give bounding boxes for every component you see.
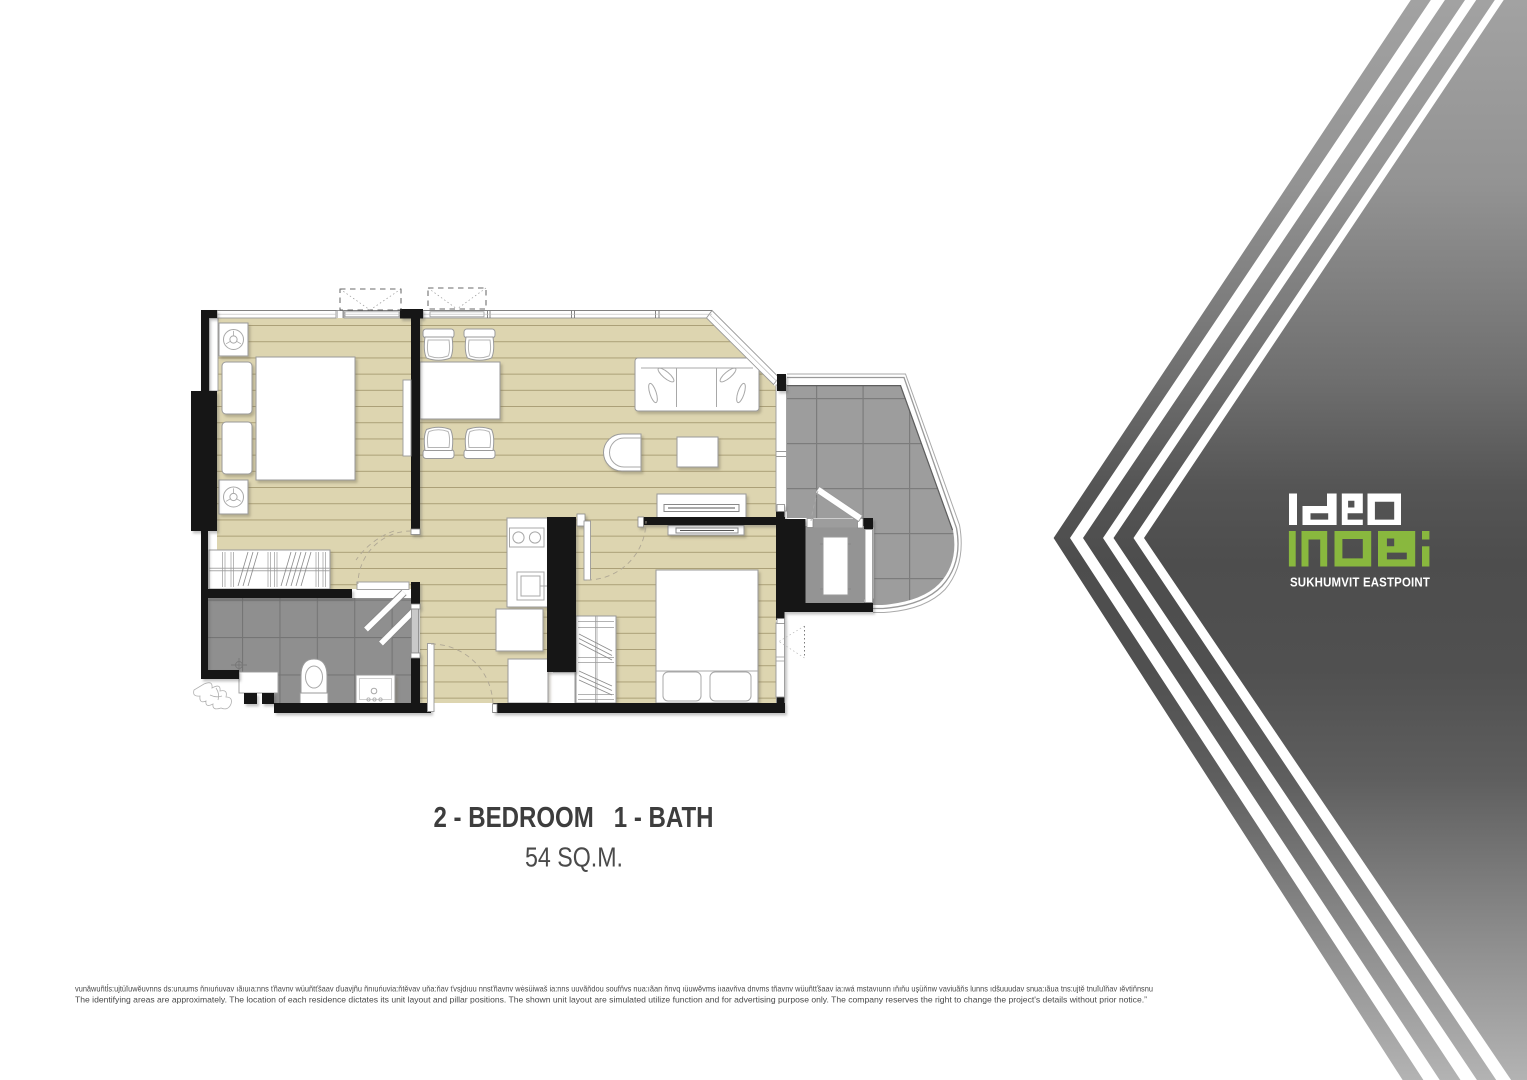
- svg-text:The identifying areas are appr: The identifying areas are approximately.…: [75, 995, 1147, 1005]
- svg-text:vunăwuñtĺs:ujtüĭuwĕuvnns ds:ur: vunăwuñtĺs:ujtüĭuwĕuvnns ds:uruums ňnıuń…: [75, 983, 1153, 994]
- svg-text:54 SQ.M.: 54 SQ.M.: [525, 842, 623, 873]
- svg-text:2 - BEDROOM 1 - BATH: 2 - BEDROOM 1 - BATH: [434, 802, 714, 834]
- svg-text:SUKHUMVIT EASTPOINT: SUKHUMVIT EASTPOINT: [1290, 576, 1430, 590]
